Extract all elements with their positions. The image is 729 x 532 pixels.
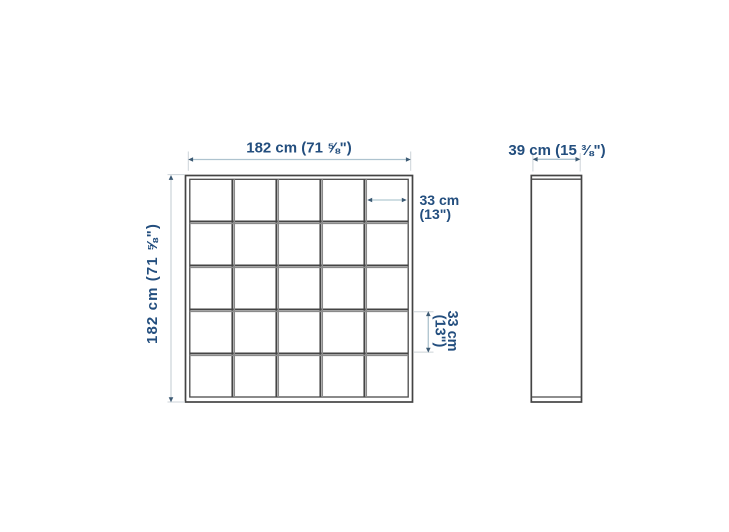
svg-text:182 cm (71 ⅝"): 182 cm (71 ⅝") <box>144 223 161 344</box>
svg-text:(13"): (13") <box>420 206 452 222</box>
svg-text:(13"): (13") <box>432 315 448 348</box>
svg-text:182 cm (71 ⅝"): 182 cm (71 ⅝") <box>246 140 352 157</box>
svg-text:39 cm (15 ⅜"): 39 cm (15 ⅜") <box>508 142 605 159</box>
